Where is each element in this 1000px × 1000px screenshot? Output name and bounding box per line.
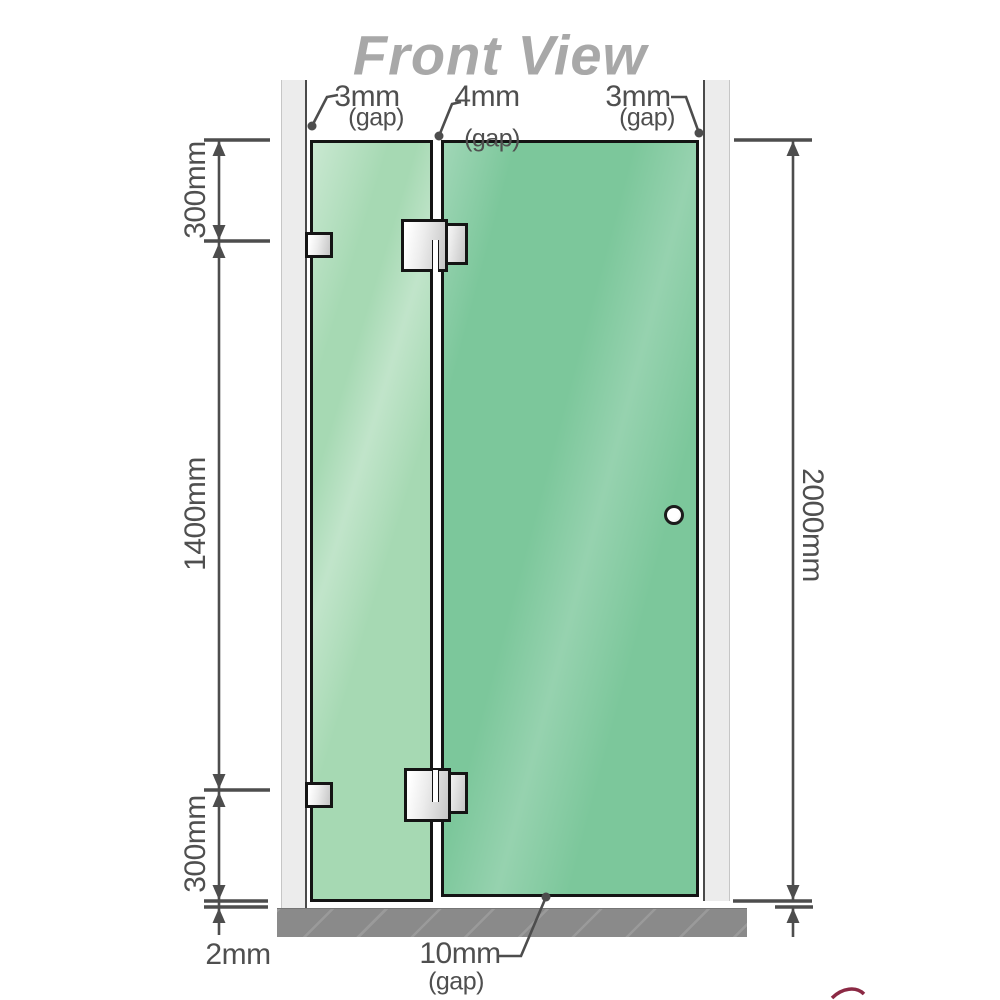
- gap-label-bottom-value: 10mm: [419, 937, 500, 971]
- gap-label-middle-qualifier: (gap): [464, 125, 520, 154]
- gap-label-middle-value: 4mm: [454, 80, 519, 114]
- gap-leader-lines: [312, 95, 699, 956]
- gap-label-bottom-qualifier: (gap): [428, 968, 484, 997]
- gap-leader-dots: [308, 122, 704, 902]
- dimension-label-floor-gap-2mm: 2mm: [205, 938, 270, 972]
- dimension-label-middle-1400mm: 1400mm: [179, 457, 213, 571]
- dimension-label-total-2000mm: 2000mm: [795, 468, 829, 582]
- logo-swoosh-icon: [832, 989, 864, 998]
- left-dimension-chain: [204, 140, 270, 935]
- gap-label-right-qualifier: (gap): [619, 104, 675, 133]
- dimension-label-top-300mm: 300mm: [179, 141, 213, 239]
- gap-label-left-qualifier: (gap): [348, 104, 404, 133]
- front-view-diagram: Front View: [0, 0, 1000, 1000]
- dimension-label-bottom-300mm: 300mm: [179, 795, 213, 893]
